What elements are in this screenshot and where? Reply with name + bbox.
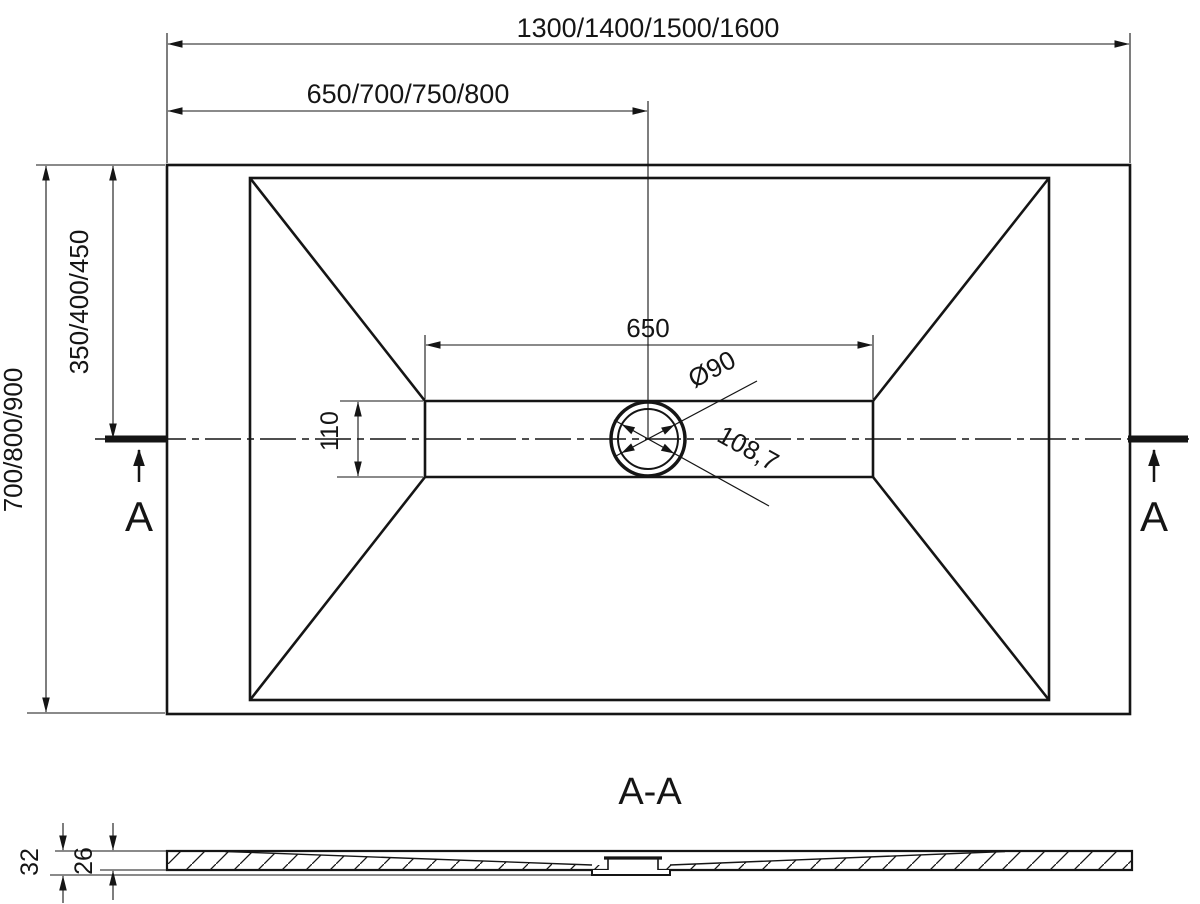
top-view (95, 165, 1190, 714)
dim-label-channel-width: 110 (316, 411, 344, 451)
slope-diagonal-top-right (873, 178, 1049, 401)
dim-label-base-thickness: 26 (70, 847, 98, 875)
shower-tray-drawing: 1300/1400/1500/1600 650/700/750/800 700/… (0, 0, 1200, 904)
drain-recess-inner (608, 858, 658, 870)
dim-label-total-height: 32 (16, 848, 44, 876)
section-marker-label-left: A (125, 493, 153, 540)
dim-label-width-to-drain: 650/700/750/800 (307, 79, 510, 109)
section-marker-label-right: A (1140, 493, 1168, 540)
dim-label-overall-width: 1300/1400/1500/1600 (517, 13, 780, 43)
dim-label-drain-diagonal: 108,7 (713, 419, 784, 477)
technical-drawing-page: 1300/1400/1500/1600 650/700/750/800 700/… (0, 0, 1200, 904)
slope-diagonal-bottom-right (873, 477, 1049, 700)
drain-recess-outer (592, 870, 670, 875)
labels: 1300/1400/1500/1600 650/700/750/800 700/… (0, 13, 1168, 876)
dim-label-drain-diameter: Ø90 (683, 344, 740, 394)
dim-label-channel-length: 650 (626, 313, 669, 343)
slope-diagonal-top-left (250, 178, 425, 401)
top-view-dimensions (27, 33, 1130, 713)
dim-label-depth-to-center: 350/400/450 (64, 230, 94, 375)
section-view (167, 851, 1132, 875)
slope-diagonal-bottom-left (250, 477, 425, 700)
dim-label-overall-depth: 700/800/900 (0, 368, 28, 513)
section-title: A-A (618, 771, 682, 813)
